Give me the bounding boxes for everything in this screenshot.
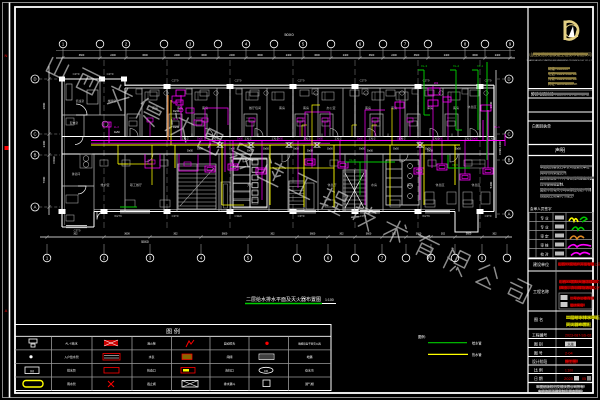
svg-text:B: B xyxy=(508,158,511,163)
svg-text:7: 7 xyxy=(381,256,384,261)
svg-text:排水管: 排水管 xyxy=(67,368,76,373)
svg-text:2-04: 2-04 xyxy=(565,352,573,356)
svg-text:1 XL-2: 1 XL-2 xyxy=(489,139,496,141)
svg-text:水施: 水施 xyxy=(567,342,574,347)
svg-text:2400: 2400 xyxy=(495,54,501,57)
svg-text:3600: 3600 xyxy=(124,233,130,236)
svg-text:3600: 3600 xyxy=(201,54,207,57)
svg-text:B: B xyxy=(34,153,37,158)
svg-text:C3T9: C3T9 xyxy=(74,229,81,233)
svg-text:专 业: 专 业 xyxy=(540,216,549,221)
svg-text:05: 05 xyxy=(582,377,586,381)
svg-text:De50: De50 xyxy=(425,148,431,150)
svg-text:(商业、办公楼及酒店客房部分): (商业、办公楼及酒店客房部分) xyxy=(559,285,600,290)
svg-text:灭火器布置图: 灭火器布置图 xyxy=(566,321,591,328)
svg-text:De50: De50 xyxy=(327,148,333,150)
svg-text:3600: 3600 xyxy=(414,54,420,57)
svg-text:维护室: 维护室 xyxy=(100,182,109,187)
svg-text:7: 7 xyxy=(404,42,407,47)
svg-text:D: D xyxy=(33,77,36,82)
svg-text:De50: De50 xyxy=(455,148,461,150)
svg-text:本图纸版权归艾德沃思公司所有: 本图纸版权归艾德沃思公司所有 xyxy=(536,384,584,389)
svg-text:2400: 2400 xyxy=(110,54,116,57)
svg-text:施工图: 施工图 xyxy=(565,359,577,364)
svg-text:A: A xyxy=(5,308,8,313)
svg-text:2: 2 xyxy=(125,42,128,47)
svg-text:302: 302 xyxy=(492,233,497,236)
svg-text:休息区: 休息区 xyxy=(435,182,444,187)
svg-text:1:100: 1:100 xyxy=(565,369,573,373)
svg-text:XL-5: XL-5 xyxy=(452,163,458,167)
svg-text:客房: 客房 xyxy=(279,105,285,110)
svg-text:302: 302 xyxy=(173,233,178,236)
svg-text:3: 3 xyxy=(149,256,152,261)
svg-text:C3E9: C3E9 xyxy=(235,214,242,218)
svg-text:休息区: 休息区 xyxy=(471,182,480,187)
svg-text:De50: De50 xyxy=(472,137,478,140)
svg-text:休息区: 休息区 xyxy=(467,104,476,109)
svg-text:De50: De50 xyxy=(237,137,243,140)
svg-text:7600: 7600 xyxy=(42,176,46,183)
svg-text:通气帽: 通气帽 xyxy=(305,381,314,386)
svg-text:JL-2: JL-2 xyxy=(173,117,179,121)
svg-text:1 XL-2: 1 XL-2 xyxy=(182,139,189,141)
svg-text:专 业: 专 业 xyxy=(540,225,549,230)
svg-text:De50: De50 xyxy=(247,150,253,153)
svg-text:302: 302 xyxy=(339,233,344,236)
svg-text:比 例: 比 例 xyxy=(534,368,543,373)
svg-text:6: 6 xyxy=(327,256,330,261)
svg-text:日 期: 日 期 xyxy=(534,376,543,381)
svg-text:C2T9: C2T9 xyxy=(360,79,367,83)
svg-text:De50: De50 xyxy=(293,148,299,150)
svg-text:图 号: 图 号 xyxy=(534,351,543,356)
svg-text:3800: 3800 xyxy=(42,102,46,109)
svg-text:XL-1: XL-1 xyxy=(477,64,484,68)
svg-text:客房: 客房 xyxy=(365,105,371,110)
svg-text:2023: 2023 xyxy=(564,376,574,381)
svg-text:C099 2400: C099 2400 xyxy=(498,141,502,155)
svg-text:5: 5 xyxy=(247,256,250,261)
svg-text:办公室: 办公室 xyxy=(326,105,335,110)
svg-text:C: C xyxy=(507,132,510,137)
svg-text:C: C xyxy=(33,132,36,137)
svg-text:建设单位: 建设单位 xyxy=(533,261,549,267)
svg-text:5: 5 xyxy=(302,42,305,47)
svg-text:值班室: 值班室 xyxy=(76,99,85,103)
svg-text:De50: De50 xyxy=(263,148,269,150)
svg-text:3: 3 xyxy=(189,42,192,47)
svg-text:1 XL-2: 1 XL-2 xyxy=(369,139,376,141)
svg-text:自动喷头: 自动喷头 xyxy=(224,341,236,346)
svg-text:3600: 3600 xyxy=(79,54,85,57)
svg-text:入户给水管: 入户给水管 xyxy=(64,354,79,359)
svg-text:C2T9: C2T9 xyxy=(298,79,305,83)
svg-text:De50: De50 xyxy=(187,150,193,153)
svg-text:1 XL-2: 1 XL-2 xyxy=(465,139,472,141)
svg-text:XL-2: XL-2 xyxy=(453,64,460,68)
svg-text:A: A xyxy=(508,212,511,217)
svg-text:客房: 客房 xyxy=(152,105,158,110)
svg-text:山西XX房地产开发有限公司: 山西XX房地产开发有限公司 xyxy=(558,262,600,267)
svg-text:白图回执单: 白图回执单 xyxy=(532,124,551,129)
svg-text:排水漏斗: 排水漏斗 xyxy=(224,381,236,386)
svg-text:1: 1 xyxy=(62,42,65,47)
svg-text:302: 302 xyxy=(392,233,397,236)
svg-text:休息厅: 休息厅 xyxy=(327,182,336,187)
svg-text:W2T9: W2T9 xyxy=(422,214,430,218)
svg-text:水表: 水表 xyxy=(149,354,155,359)
svg-text:CD: CD xyxy=(264,369,269,373)
svg-text:C3T9: C3T9 xyxy=(485,214,492,218)
svg-text:2400: 2400 xyxy=(229,54,235,57)
svg-text:闸阀: 闸阀 xyxy=(227,354,233,359)
svg-text:设计阶段: 设计阶段 xyxy=(532,359,547,364)
svg-text:De50: De50 xyxy=(114,131,120,134)
svg-text:De50: De50 xyxy=(317,137,323,140)
svg-text:淋浴间: 淋浴间 xyxy=(72,172,81,176)
svg-text:AL-X给水: AL-X给水 xyxy=(65,341,77,346)
svg-text:XL-4: XL-4 xyxy=(349,158,355,162)
svg-text:工程名称: 工程名称 xyxy=(533,288,549,294)
svg-text:8: 8 xyxy=(430,256,433,261)
svg-text:50X0: 50X0 xyxy=(141,240,149,244)
svg-text:3600: 3600 xyxy=(369,54,375,57)
svg-text:职工餐厅: 职工餐厅 xyxy=(130,182,142,187)
svg-text:C2T9: C2T9 xyxy=(107,72,114,76)
svg-text:JL-3: JL-3 xyxy=(114,126,119,129)
svg-text:D: D xyxy=(507,77,510,82)
svg-text:SHANXI ADWS PUMPING ENGINEERIN: SHANXI ADWS PUMPING ENGINEERING TECHNOLO… xyxy=(527,59,594,62)
svg-text:3600: 3600 xyxy=(142,54,148,57)
svg-text:雨水管: 雨水管 xyxy=(67,381,76,386)
svg-text:清扫口: 清扫口 xyxy=(225,368,234,373)
svg-text:50X0: 50X0 xyxy=(284,32,294,37)
svg-text:4: 4 xyxy=(200,256,203,261)
svg-text:2400: 2400 xyxy=(174,54,180,57)
svg-text:L3T9: L3T9 xyxy=(360,214,367,218)
svg-text:4: 4 xyxy=(245,42,248,47)
svg-text:A: A xyxy=(34,205,37,210)
svg-text:C2T9: C2T9 xyxy=(485,79,492,83)
svg-text:声明: 声明 xyxy=(555,147,565,154)
svg-text:De50: De50 xyxy=(307,150,313,153)
svg-text:De50: De50 xyxy=(197,148,203,150)
svg-text:2400: 2400 xyxy=(391,54,397,57)
svg-text:1: 1 xyxy=(46,256,49,261)
svg-text:3600: 3600 xyxy=(366,233,372,236)
svg-text:山西XX国际大酒店建设项目工程: 山西XX国际大酒店建设项目工程 xyxy=(559,279,600,284)
svg-text:8: 8 xyxy=(464,42,467,47)
svg-text:2#2: 2#2 xyxy=(434,81,439,85)
svg-text:地漏: 地漏 xyxy=(307,354,313,359)
svg-text:2400: 2400 xyxy=(343,54,349,57)
svg-text:审 核: 审 核 xyxy=(540,243,549,248)
svg-text:M: M xyxy=(30,368,33,373)
svg-text:餐厅包间: 餐厅包间 xyxy=(249,105,261,110)
svg-text:磷酸铵盐干粉灭火器: 磷酸铵盐干粉灭火器 xyxy=(298,342,321,346)
svg-text:De50: De50 xyxy=(359,148,365,150)
svg-text:XL-3: XL-3 xyxy=(421,64,428,68)
svg-text:1 XL-2: 1 XL-2 xyxy=(272,139,279,141)
svg-text:9: 9 xyxy=(481,256,484,261)
svg-text:C2T9: C2T9 xyxy=(235,79,242,83)
svg-text:2400: 2400 xyxy=(444,54,450,57)
svg-text:存水弯: 存水弯 xyxy=(305,368,314,373)
svg-text:3600: 3600 xyxy=(466,233,472,236)
svg-text:C2T9: C2T9 xyxy=(73,72,80,76)
svg-text:302: 302 xyxy=(270,233,275,236)
svg-text:水房: 水房 xyxy=(371,182,377,187)
svg-text:1:100: 1:100 xyxy=(325,298,334,302)
svg-text:W2T9: W2T9 xyxy=(114,214,122,218)
svg-text:3600: 3600 xyxy=(310,233,316,236)
svg-text:检查口: 检查口 xyxy=(147,368,156,373)
svg-text:9: 9 xyxy=(509,42,512,47)
svg-text:未经许可不得复制引用本图纸: 未经许可不得复制引用本图纸 xyxy=(538,389,583,394)
svg-text:二号办公楼商业: 二号办公楼商业 xyxy=(570,296,594,301)
svg-text:3600: 3600 xyxy=(257,54,263,57)
svg-text:3600: 3600 xyxy=(222,233,228,236)
svg-text:会审人员签字: 会审人员签字 xyxy=(530,206,552,211)
svg-text:图 别: 图 别 xyxy=(534,342,543,347)
svg-text:酒店客房: 酒店客房 xyxy=(570,303,584,308)
svg-text:6: 6 xyxy=(359,42,362,47)
svg-text:图 名: 图 名 xyxy=(534,316,543,322)
svg-text:1 XL-2: 1 XL-2 xyxy=(399,139,406,141)
svg-text:C099: C099 xyxy=(52,156,56,164)
svg-text:图 例: 图 例 xyxy=(166,328,180,336)
svg-text:C2T9: C2T9 xyxy=(172,79,179,83)
svg-text:1 XL-2: 1 XL-2 xyxy=(433,139,440,141)
svg-text:审 定: 审 定 xyxy=(540,234,549,239)
svg-text:1 XL-2: 1 XL-2 xyxy=(212,139,219,141)
svg-text:棋牌室: 棋牌室 xyxy=(108,99,117,103)
svg-text:工程编号: 工程编号 xyxy=(532,333,547,338)
svg-text:De50: De50 xyxy=(357,137,363,140)
svg-text:2023-087-SS-02: 2023-087-SS-02 xyxy=(565,334,591,338)
svg-text:De50: De50 xyxy=(393,148,399,150)
svg-text:1 XL-2: 1 XL-2 xyxy=(245,139,252,141)
svg-text:二层给水排水平面及: 二层给水排水平面及 xyxy=(566,314,600,321)
svg-text:De50: De50 xyxy=(229,148,235,150)
svg-text:截止阀: 截止阀 xyxy=(147,381,156,386)
svg-text:3600: 3600 xyxy=(472,54,478,57)
svg-text:3600: 3600 xyxy=(314,54,320,57)
svg-text:C3T9: C3T9 xyxy=(298,214,305,218)
svg-text:消火栓: 消火栓 xyxy=(147,341,156,346)
svg-text:热水管: 热水管 xyxy=(472,352,482,357)
svg-text:5400: 5400 xyxy=(489,181,493,188)
svg-text:二层给水排水平面及灭火器布置图: 二层给水排水平面及灭火器布置图 xyxy=(246,296,321,303)
svg-text:De50: De50 xyxy=(197,137,203,140)
svg-text:XL-1: XL-1 xyxy=(494,125,500,129)
svg-text:De50: De50 xyxy=(367,150,373,153)
svg-text:2400: 2400 xyxy=(42,140,46,147)
svg-text:De50: De50 xyxy=(173,125,180,129)
svg-text:2400: 2400 xyxy=(286,54,292,57)
svg-text:C3T9: C3T9 xyxy=(172,214,179,218)
svg-text:302: 302 xyxy=(441,233,446,236)
svg-text:客房: 客房 xyxy=(303,105,309,110)
svg-text:2: 2 xyxy=(103,256,106,261)
svg-text:302: 302 xyxy=(73,233,78,236)
svg-text:校 对: 校 对 xyxy=(540,252,549,257)
svg-text:给水管: 给水管 xyxy=(472,340,482,345)
svg-text:图例:: 图例: xyxy=(418,334,426,339)
svg-text:3600: 3600 xyxy=(416,233,422,236)
svg-text:配电室: 配电室 xyxy=(70,121,79,125)
svg-text:N: N xyxy=(5,53,8,58)
svg-text:1 XL-2: 1 XL-2 xyxy=(335,139,342,141)
